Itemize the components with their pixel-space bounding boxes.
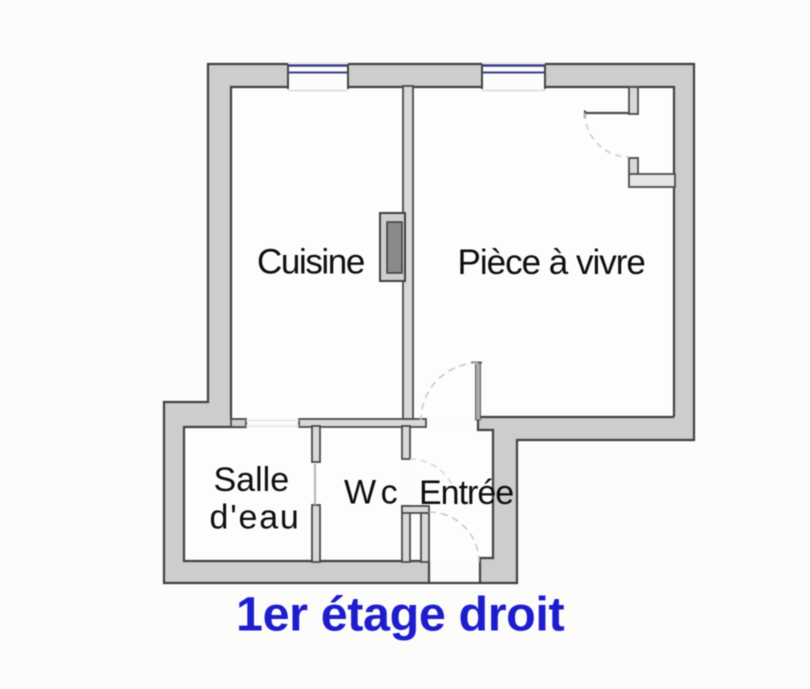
- svg-text:Entrée: Entrée: [419, 474, 513, 512]
- svg-text:Salle: Salle: [214, 461, 290, 499]
- svg-text:Wc: Wc: [344, 474, 402, 512]
- svg-text:Pièce à vivre: Pièce à vivre: [458, 243, 645, 282]
- svg-text:Cuisine: Cuisine: [257, 243, 364, 282]
- svg-text:d'eau: d'eau: [210, 499, 301, 537]
- svg-text:1er étage droit: 1er étage droit: [236, 588, 564, 642]
